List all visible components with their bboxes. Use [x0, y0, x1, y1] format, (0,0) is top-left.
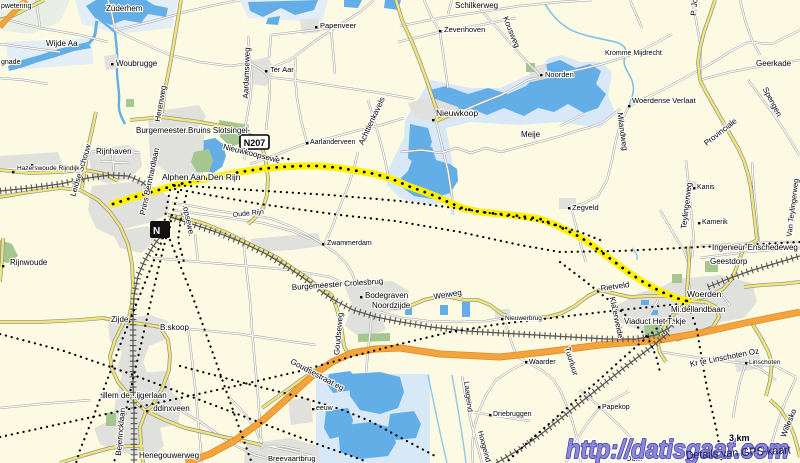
svg-text:Schilkerweg: Schilkerweg	[455, 1, 498, 10]
svg-text:Aarlanderveen: Aarlanderveen	[310, 139, 356, 146]
svg-text:Viaduct Het T..kje: Viaduct Het T..kje	[624, 317, 687, 326]
svg-text:Nieuwerbrug: Nieuwerbrug	[505, 315, 542, 322]
svg-text:Rijnhaven: Rijnhaven	[96, 147, 132, 156]
svg-text:Geerkade: Geerkade	[756, 59, 792, 68]
svg-text:Züderhem: Züderhem	[106, 4, 143, 13]
svg-text:Bodegraven: Bodegraven	[365, 291, 408, 300]
svg-text:N: N	[153, 226, 160, 237]
svg-text:Breevaartbrug: Breevaartbrug	[268, 454, 316, 463]
svg-text:.ddinxveen: .ddinxveen	[151, 404, 190, 413]
svg-text:Mi.dellandbaan: Mi.dellandbaan	[671, 305, 725, 314]
svg-text:B.skoop: B.skoop	[160, 323, 189, 332]
svg-text:Rijnwoude: Rijnwoude	[10, 258, 48, 267]
svg-text:Ter Aar: Ter Aar	[270, 65, 294, 74]
svg-text:Papekop: Papekop	[602, 404, 630, 411]
svg-text:Noorden: Noorden	[545, 70, 574, 79]
svg-text:Driebruggen: Driebruggen	[493, 411, 532, 418]
svg-text:gnade: gnade	[1, 59, 21, 66]
svg-text:Noordzijde: Noordzijde	[372, 301, 411, 310]
svg-text:Papenveer: Papenveer	[320, 21, 357, 30]
svg-text:Wijde Aa: Wijde Aa	[46, 39, 78, 48]
svg-text:Kromme Mijdrecht: Kromme Mijdrecht	[605, 50, 662, 57]
svg-text:Henegouwerweg: Henegouwerweg	[139, 451, 199, 460]
svg-text:Woerden: Woerden	[687, 289, 722, 299]
svg-text:Zwammerdam: Zwammerdam	[327, 240, 372, 247]
svg-text:Linschoten: Linschoten	[749, 359, 781, 366]
svg-text:Aardamseweg: Aardamseweg	[241, 47, 252, 98]
svg-text:N207: N207	[244, 138, 266, 148]
svg-text:Zegveld: Zegveld	[572, 203, 599, 212]
svg-text:Burgemeester.Bruins Slotsingel: Burgemeester.Bruins Slotsingel-	[136, 126, 251, 135]
svg-text:Geestdorp: Geestdorp	[710, 257, 748, 266]
svg-text:Ingenieur Enschedeweg: Ingenieur Enschedeweg	[712, 243, 798, 252]
svg-text:Waarder: Waarder	[529, 359, 556, 366]
svg-text:3 km: 3 km	[729, 433, 750, 443]
svg-text:Woerdense Verlaat: Woerdense Verlaat	[632, 96, 697, 105]
svg-text:Zijde: Zijde	[111, 315, 129, 324]
svg-text:pwetering: pwetering	[1, 3, 31, 10]
svg-text:Hazerswoude Rijndijk: Hazerswoude Rijndijk	[17, 165, 80, 172]
svg-text:Nieuwkoop: Nieuwkoop	[436, 108, 478, 118]
svg-text:Alphen Aan Den Rijn: Alphen Aan Den Rijn	[162, 172, 241, 182]
svg-text:eeuw: eeuw	[316, 405, 334, 412]
svg-text:Kamerik: Kamerik	[702, 219, 728, 226]
svg-text:Zevenhoven: Zevenhoven	[444, 25, 485, 34]
svg-text:Kanis: Kanis	[697, 184, 715, 191]
svg-text:.illem de ..ijgerlaan: .illem de ..ijgerlaan	[100, 391, 167, 400]
svg-text:Meije: Meije	[521, 130, 541, 139]
svg-text:Woubrugge: Woubrugge	[116, 59, 158, 68]
